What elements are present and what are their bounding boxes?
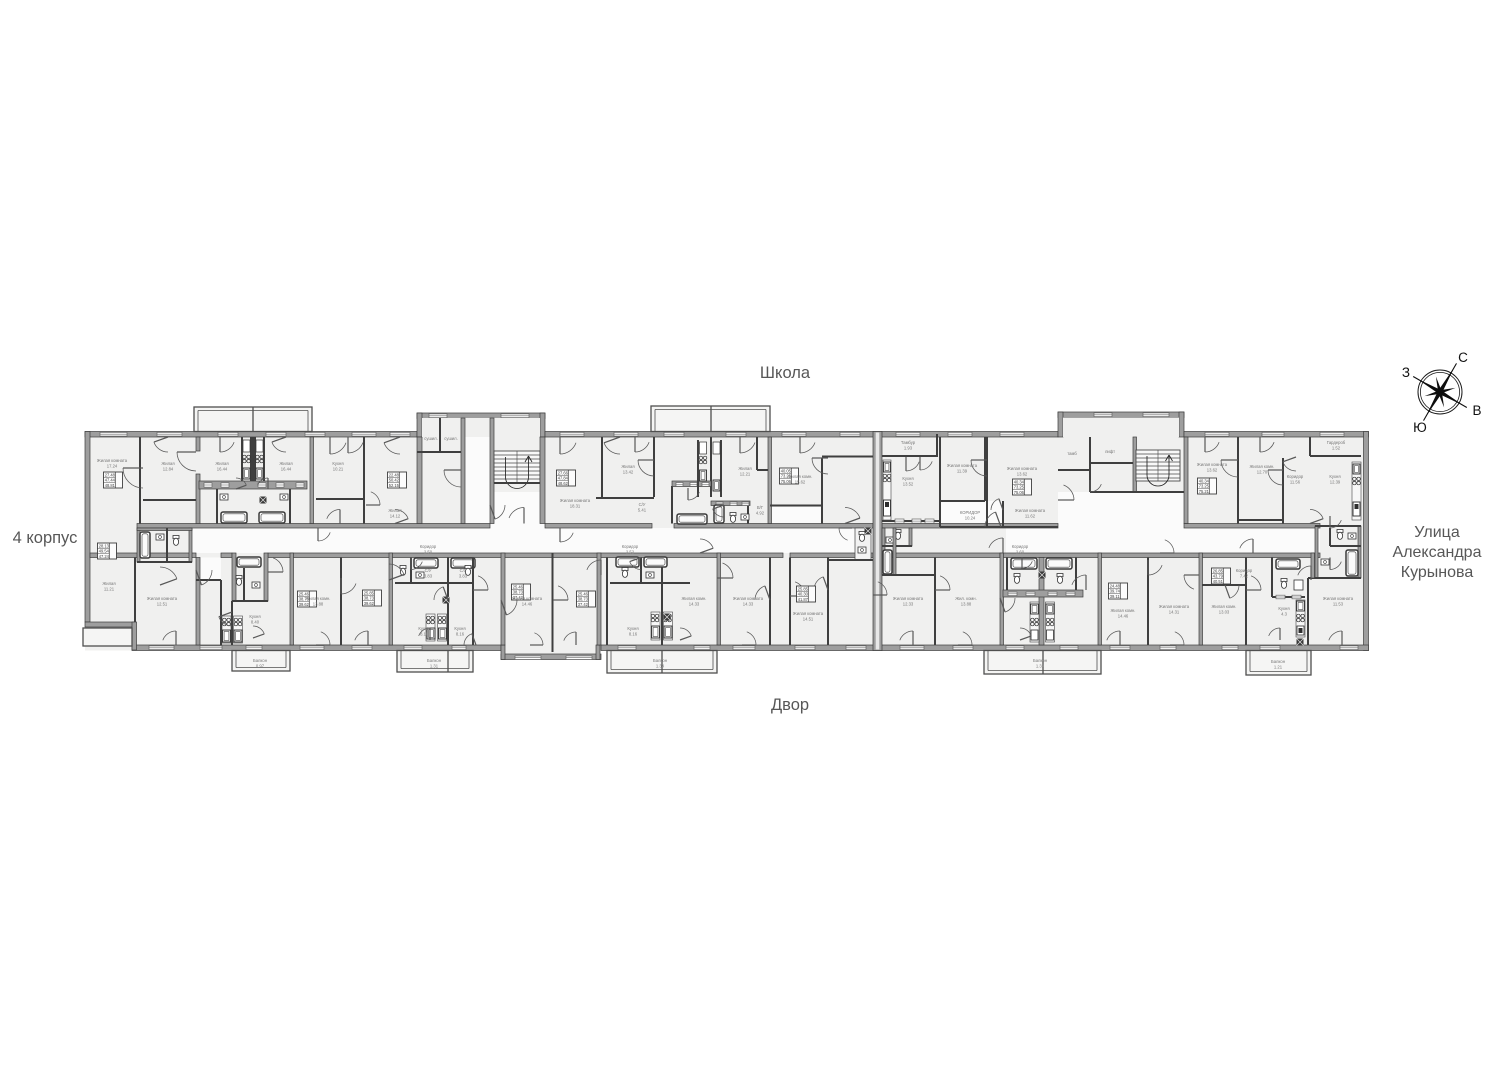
- svg-text:Жилая комн.: Жилая комн.: [1250, 464, 1275, 469]
- svg-text:13.42: 13.42: [623, 469, 634, 474]
- svg-text:В/Г: В/Г: [757, 505, 764, 510]
- svg-text:13.03: 13.03: [1219, 609, 1230, 614]
- svg-text:Жилая комната: Жилая комната: [97, 458, 128, 463]
- svg-text:Кухня: Кухня: [1329, 474, 1340, 479]
- svg-text:Балкон: Балкон: [653, 658, 668, 663]
- svg-text:15.62: 15.62: [795, 479, 806, 484]
- svg-text:Жилая комната: Жилая комната: [733, 596, 764, 601]
- svg-text:14.51: 14.51: [803, 616, 814, 621]
- svg-text:Кухня: Кухня: [1278, 606, 1289, 611]
- svg-text:Жилая комн.: Жилая комн.: [1212, 604, 1237, 609]
- svg-text:Кухня: Кухня: [454, 626, 465, 631]
- svg-text:11.56: 11.56: [1290, 479, 1301, 484]
- svg-text:Жилая: Жилая: [102, 581, 115, 586]
- svg-text:Жилая комн.: Жилая комн.: [788, 474, 813, 479]
- svg-text:Жилая комната: Жилая комната: [1159, 604, 1190, 609]
- svg-text:С/У: С/У: [639, 502, 646, 507]
- svg-text:13.52: 13.52: [903, 481, 914, 486]
- svg-text:75.06: 75.06: [1014, 490, 1025, 495]
- svg-text:Жилая комната: Жилая комната: [1197, 462, 1228, 467]
- svg-text:11.21: 11.21: [104, 586, 115, 591]
- svg-text:3.83: 3.83: [424, 573, 433, 578]
- svg-text:Кухня: Кухня: [249, 614, 260, 619]
- svg-text:Жилая: Жилая: [388, 508, 401, 513]
- svg-text:1.52: 1.52: [1332, 445, 1341, 450]
- svg-text:14.33: 14.33: [743, 601, 754, 606]
- svg-text:75.06: 75.06: [781, 479, 792, 484]
- svg-text:1.31: 1.31: [430, 663, 439, 668]
- svg-text:41.87: 41.87: [798, 597, 809, 602]
- svg-text:Жилая комната: Жилая комната: [1007, 466, 1038, 471]
- svg-text:8.40: 8.40: [251, 619, 260, 624]
- svg-text:0.97: 0.97: [256, 663, 265, 668]
- svg-text:17.24: 17.24: [107, 463, 118, 468]
- svg-text:8.16: 8.16: [456, 631, 465, 636]
- svg-text:1.93: 1.93: [904, 445, 913, 450]
- svg-text:5.41: 5.41: [638, 507, 647, 512]
- svg-text:Жилая комната: Жилая комната: [947, 463, 978, 468]
- svg-text:1.34: 1.34: [656, 663, 665, 668]
- svg-text:10.24: 10.24: [965, 515, 976, 520]
- svg-text:Школа: Школа: [760, 364, 811, 382]
- svg-text:Балкон: Балкон: [1033, 658, 1048, 663]
- svg-text:З: З: [1402, 365, 1410, 380]
- svg-text:48.62: 48.62: [558, 481, 569, 486]
- svg-text:14.46: 14.46: [522, 601, 533, 606]
- svg-text:Жилая: Жилая: [161, 461, 174, 466]
- svg-text:8.11: 8.11: [420, 631, 429, 636]
- svg-text:Балкон: Балкон: [253, 658, 268, 663]
- svg-text:Жилая комн.: Жилая комн.: [682, 596, 707, 601]
- svg-text:13.62: 13.62: [1017, 471, 1028, 476]
- svg-text:Жилая комн.: Жилая комн.: [1111, 608, 1136, 613]
- svg-text:12.33: 12.33: [903, 601, 914, 606]
- svg-text:Двор: Двор: [771, 696, 809, 714]
- svg-text:сушил.: сушил.: [444, 436, 458, 441]
- svg-text:С/У: С/У: [425, 568, 432, 573]
- svg-text:Кухня: Кухня: [418, 626, 429, 631]
- svg-text:В: В: [1472, 403, 1481, 418]
- svg-text:1.31: 1.31: [1036, 663, 1045, 668]
- svg-text:Жилая: Жилая: [738, 466, 751, 471]
- svg-text:13.62: 13.62: [1207, 467, 1218, 472]
- svg-text:11.39: 11.39: [957, 468, 968, 473]
- svg-text:18.31: 18.31: [570, 503, 581, 508]
- svg-text:Тамбур: Тамбур: [901, 440, 916, 445]
- svg-text:75.21: 75.21: [1199, 489, 1210, 494]
- svg-text:52.15: 52.15: [389, 483, 400, 488]
- svg-text:Жилая комната: Жилая комната: [147, 596, 178, 601]
- svg-text:39.62: 39.62: [299, 602, 310, 607]
- svg-text:2.60: 2.60: [1016, 549, 1025, 554]
- svg-text:лифт: лифт: [1105, 449, 1115, 454]
- svg-text:Курынова: Курынова: [1401, 564, 1474, 581]
- svg-text:Балкон: Балкон: [427, 658, 442, 663]
- svg-text:Жилая комната: Жилая комната: [1015, 508, 1046, 513]
- svg-text:39.11: 39.11: [1110, 594, 1121, 599]
- svg-text:Кухня: Кухня: [332, 461, 343, 466]
- svg-text:тамб: тамб: [1067, 451, 1077, 456]
- svg-text:Коридор: Коридор: [420, 544, 437, 549]
- svg-text:12.70: 12.70: [1257, 469, 1268, 474]
- svg-text:4.3: 4.3: [1281, 611, 1287, 616]
- svg-text:Жилая: Жилая: [215, 461, 228, 466]
- svg-text:8.16: 8.16: [629, 631, 638, 636]
- svg-text:39.62: 39.62: [364, 601, 375, 606]
- svg-text:4 корпус: 4 корпус: [13, 529, 78, 547]
- svg-text:14.12: 14.12: [390, 513, 401, 518]
- svg-text:Жилая комната: Жилая комната: [512, 596, 543, 601]
- svg-text:16.44: 16.44: [217, 466, 228, 471]
- svg-text:Жилая комната: Жилая комната: [893, 596, 924, 601]
- svg-text:3.83: 3.83: [459, 573, 468, 578]
- svg-text:сушил.: сушил.: [424, 436, 438, 441]
- svg-text:13.88: 13.88: [961, 601, 972, 606]
- svg-text:10.21: 10.21: [333, 466, 344, 471]
- svg-text:КОРИДОР: КОРИДОР: [960, 510, 981, 515]
- svg-text:1.21: 1.21: [1274, 664, 1283, 669]
- svg-text:Кухня: Кухня: [902, 476, 913, 481]
- svg-text:Жилая комн.: Жилая комн.: [306, 596, 331, 601]
- svg-text:Коридор: Коридор: [1012, 544, 1029, 549]
- svg-text:Гардероб: Гардероб: [1327, 440, 1346, 445]
- svg-text:Коридор: Коридор: [1236, 568, 1253, 573]
- svg-text:2.50: 2.50: [424, 549, 433, 554]
- svg-text:Ю: Ю: [1413, 420, 1427, 435]
- svg-text:12.51: 12.51: [157, 601, 168, 606]
- svg-text:11.62: 11.62: [1025, 513, 1036, 518]
- svg-text:Улица: Улица: [1414, 524, 1460, 541]
- svg-text:14.31: 14.31: [1169, 609, 1180, 614]
- svg-text:16.44: 16.44: [281, 466, 292, 471]
- svg-text:Жилая комната: Жилая комната: [560, 498, 591, 503]
- svg-text:С/У: С/У: [460, 568, 467, 573]
- svg-text:12.39: 12.39: [1330, 479, 1341, 484]
- svg-text:С: С: [1458, 350, 1468, 365]
- svg-text:Жилая комната: Жилая комната: [1323, 596, 1354, 601]
- svg-text:2.52: 2.52: [626, 549, 635, 554]
- svg-text:13.88: 13.88: [313, 601, 324, 606]
- svg-text:48.81: 48.81: [105, 483, 116, 488]
- svg-text:Кухня: Кухня: [627, 626, 638, 631]
- svg-text:Жилая: Жилая: [621, 464, 634, 469]
- svg-text:Коридор: Коридор: [622, 544, 639, 549]
- svg-text:Жил. комн.: Жил. комн.: [955, 596, 977, 601]
- svg-text:47.24: 47.24: [99, 554, 110, 559]
- svg-text:12.84: 12.84: [163, 466, 174, 471]
- svg-text:Жилая комната: Жилая комната: [793, 611, 824, 616]
- svg-text:Балкон: Балкон: [1271, 659, 1286, 664]
- svg-text:4.92: 4.92: [756, 510, 765, 515]
- svg-text:Жилая: Жилая: [279, 461, 292, 466]
- svg-text:37.42: 37.42: [578, 602, 589, 607]
- svg-text:14.33: 14.33: [689, 601, 700, 606]
- svg-text:Александра: Александра: [1393, 544, 1482, 561]
- svg-text:Коридор: Коридор: [1287, 474, 1304, 479]
- svg-text:14.46: 14.46: [1118, 613, 1129, 618]
- svg-text:12.21: 12.21: [740, 471, 751, 476]
- svg-text:11.53: 11.53: [1333, 601, 1344, 606]
- svg-text:7.42: 7.42: [1240, 573, 1249, 578]
- svg-text:40.51: 40.51: [1213, 579, 1224, 584]
